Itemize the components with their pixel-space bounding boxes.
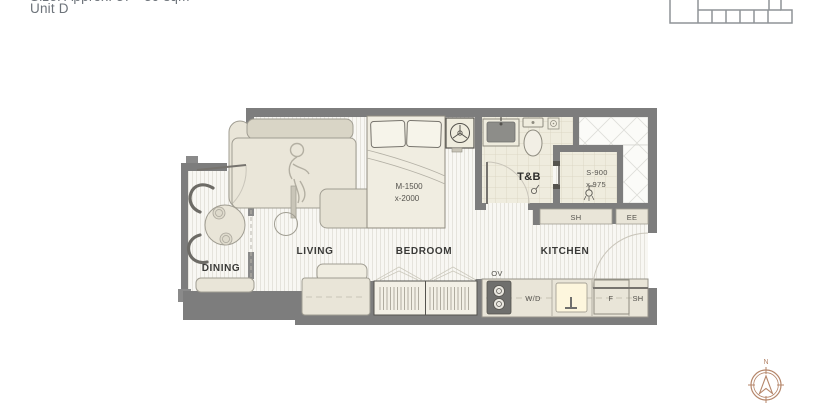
label-shelf-counter: SH [632,294,643,303]
plate [213,207,225,219]
pillow [371,120,406,147]
building-key-plan-icon [670,0,792,23]
floor-drain-icon [548,118,559,129]
cooktop [487,281,511,314]
side-table [291,186,296,218]
label-washer-dryer: W/D [525,294,541,303]
label-fridge: F [609,294,614,303]
floor-plan-canvas: DINING LIVING BEDROOM KITCHEN T&B M-1500… [0,0,818,417]
plate [220,233,232,245]
shower-length-dim: x 975 [586,180,606,189]
label-living: LIVING [297,246,334,257]
label-dining: DINING [202,263,241,274]
toilet [523,118,543,156]
label-bath: T&B [517,171,541,183]
dining-bench [196,278,254,292]
label-oven: OV [491,269,502,278]
sofa-back [247,119,353,139]
kitchen-counter [482,279,648,317]
compass-icon: N [748,359,784,403]
compass-north-label: N [763,359,768,366]
pillow [407,120,442,147]
label-kitchen: KITCHEN [541,246,590,257]
north-arrow [760,376,773,394]
label-bedroom: BEDROOM [396,246,452,257]
kitchen-sink [556,283,587,312]
label-electrical: EE [627,213,638,222]
label-shelf-strip: SH [570,213,581,222]
fan-unit-icon [446,118,474,152]
unit-floor-plan-page: Size: Approx. 37 - 39 sqm Unit D [0,0,818,417]
shower-width-dim: S-900 [586,168,608,177]
bed-length-dim: x-2000 [395,194,420,203]
bed-width-dim: M-1500 [395,182,423,191]
